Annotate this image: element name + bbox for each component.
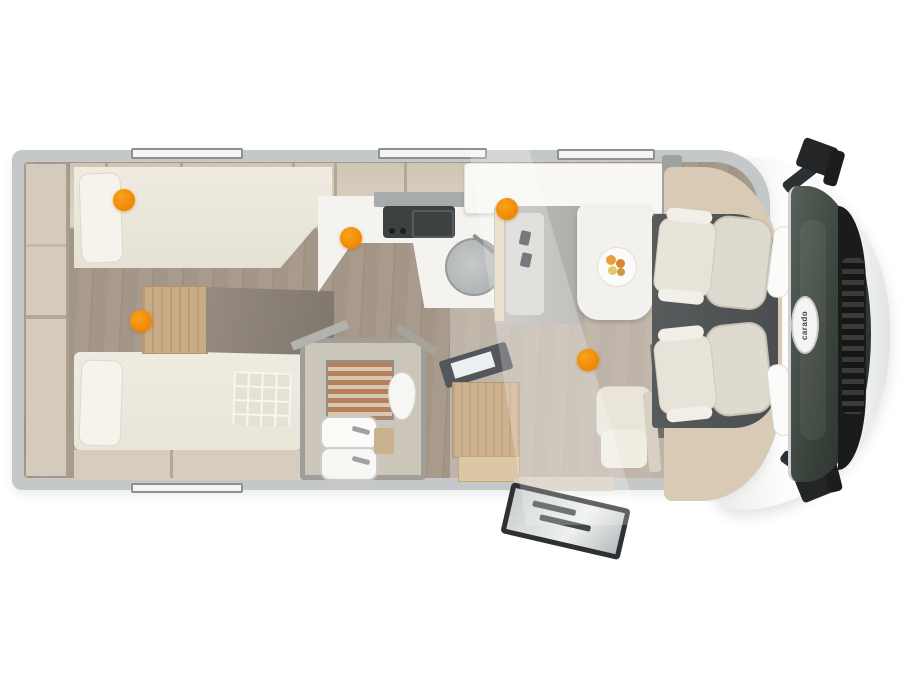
pillow [78,172,123,263]
food-item [616,259,625,268]
shower-slat-floor [326,360,394,420]
hotspot-lounge-floor[interactable] [577,349,599,371]
bench-wood-trim [495,209,504,321]
kitchen-backsplash [374,192,468,207]
food-item [608,266,617,275]
pillow [79,359,124,446]
locker-divider [170,448,173,478]
front-grille [842,258,864,414]
quilted-blanket [232,371,292,427]
stove-knob [389,228,395,234]
hotspot-kitchen[interactable] [340,227,362,249]
rear-storage-divider [26,244,66,247]
brand-logo-badge: carado [791,296,819,354]
seat-cushion [652,334,718,416]
brand-logo-text: carado [801,310,810,339]
under-bed-shelf [74,448,302,480]
entry-cabinet [452,382,520,458]
hotspot-dinette[interactable] [496,198,518,220]
food-item [617,268,625,276]
stove-knob [400,228,406,234]
entry-step [458,456,520,482]
window-top-middle [378,148,487,159]
bathroom-cabinet [374,428,394,454]
food-item [606,255,616,265]
lounge-seat-cushion [601,430,647,468]
hotspot-rear-steps[interactable] [130,310,152,332]
rear-garage-storage [26,164,69,476]
door-step-tread [539,514,591,532]
passenger-seat [647,318,776,424]
driver-seat [647,206,776,312]
window-top-front [557,149,655,160]
entry-door-open[interactable] [500,482,631,560]
stove-grate [412,210,454,238]
window-top-rear [131,148,243,159]
window-bottom-rear [131,483,243,493]
hotspot-rear-bed-top[interactable] [113,189,135,211]
floorplan-canvas: carado [0,0,900,675]
rear-storage-divider [26,315,66,319]
door-handle [532,500,576,516]
seat-cushion [652,216,718,298]
